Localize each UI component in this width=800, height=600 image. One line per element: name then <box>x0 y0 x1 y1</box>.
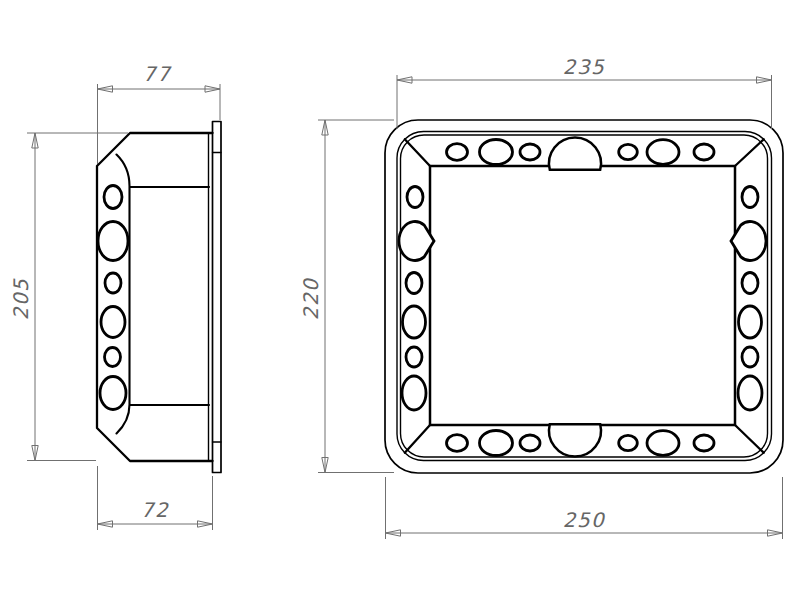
corner-facet-line <box>405 139 430 166</box>
knockout-hole <box>105 273 121 293</box>
front-outer-contour <box>385 120 783 473</box>
knockout-hole <box>742 273 758 294</box>
knockout-hole <box>406 273 422 294</box>
knockout-hole <box>619 144 638 159</box>
corner-facet-line <box>735 425 764 453</box>
knockout-hole <box>480 140 513 165</box>
knockout-hole <box>101 307 125 338</box>
front-opening <box>430 166 735 425</box>
knockout-hole <box>647 431 679 456</box>
knockout-hole <box>407 187 423 208</box>
knockout-dome-bottom <box>549 424 601 456</box>
knockout-hole <box>739 306 762 338</box>
knockout-dome-top <box>549 137 601 169</box>
knockout-hole <box>105 348 121 367</box>
knockout-hole <box>694 435 714 451</box>
knockout-hole <box>619 435 638 450</box>
side-flange-plate <box>213 122 222 473</box>
side-view <box>97 122 221 473</box>
dimension-label: 235 <box>563 55 606 79</box>
knockout-hole <box>742 347 758 367</box>
knockout-hole <box>402 376 426 410</box>
drawing-canvas: 77 205 72 <box>0 0 800 600</box>
knockout-hole <box>447 144 468 161</box>
front-seat-contour-outer <box>397 132 772 461</box>
knockout-hole <box>104 186 122 209</box>
knockout-hole <box>520 144 540 160</box>
corner-facet-line <box>405 425 430 453</box>
knockout-hole <box>403 306 426 338</box>
dimension-label: 72 <box>141 498 169 522</box>
knockout-beak-right <box>731 221 766 260</box>
knockout-hole <box>694 144 714 160</box>
dimension-width-inner: 235 <box>397 55 772 129</box>
dimension-height-overall: 220 <box>299 120 394 473</box>
knockout-hole <box>100 377 126 410</box>
technical-drawing: 77 205 72 <box>0 0 800 600</box>
knockout-hole <box>480 431 513 456</box>
dimension-label: 220 <box>299 277 323 320</box>
knockout-hole <box>98 222 128 261</box>
knockout-hole <box>742 187 758 208</box>
side-body-outline <box>97 133 213 461</box>
dimension-label: 205 <box>9 278 33 321</box>
dimension-depth-body: 72 <box>98 466 213 530</box>
dimension-label: 77 <box>143 62 172 86</box>
knockout-beak-left <box>399 221 434 260</box>
front-view-dimensions: 235 220 250 <box>299 55 783 539</box>
knockout-hole <box>738 376 762 410</box>
dimension-label: 250 <box>563 508 606 532</box>
knockout-hole <box>406 347 422 367</box>
front-seat-contour-inner <box>401 135 768 457</box>
front-view <box>385 120 783 473</box>
knockout-hole <box>520 435 540 451</box>
corner-facet-line <box>735 139 764 166</box>
knockout-hole <box>447 435 468 452</box>
dimension-height: 205 <box>9 133 128 461</box>
knockout-hole <box>647 140 679 165</box>
dimension-width-overall: 250 <box>386 477 783 539</box>
